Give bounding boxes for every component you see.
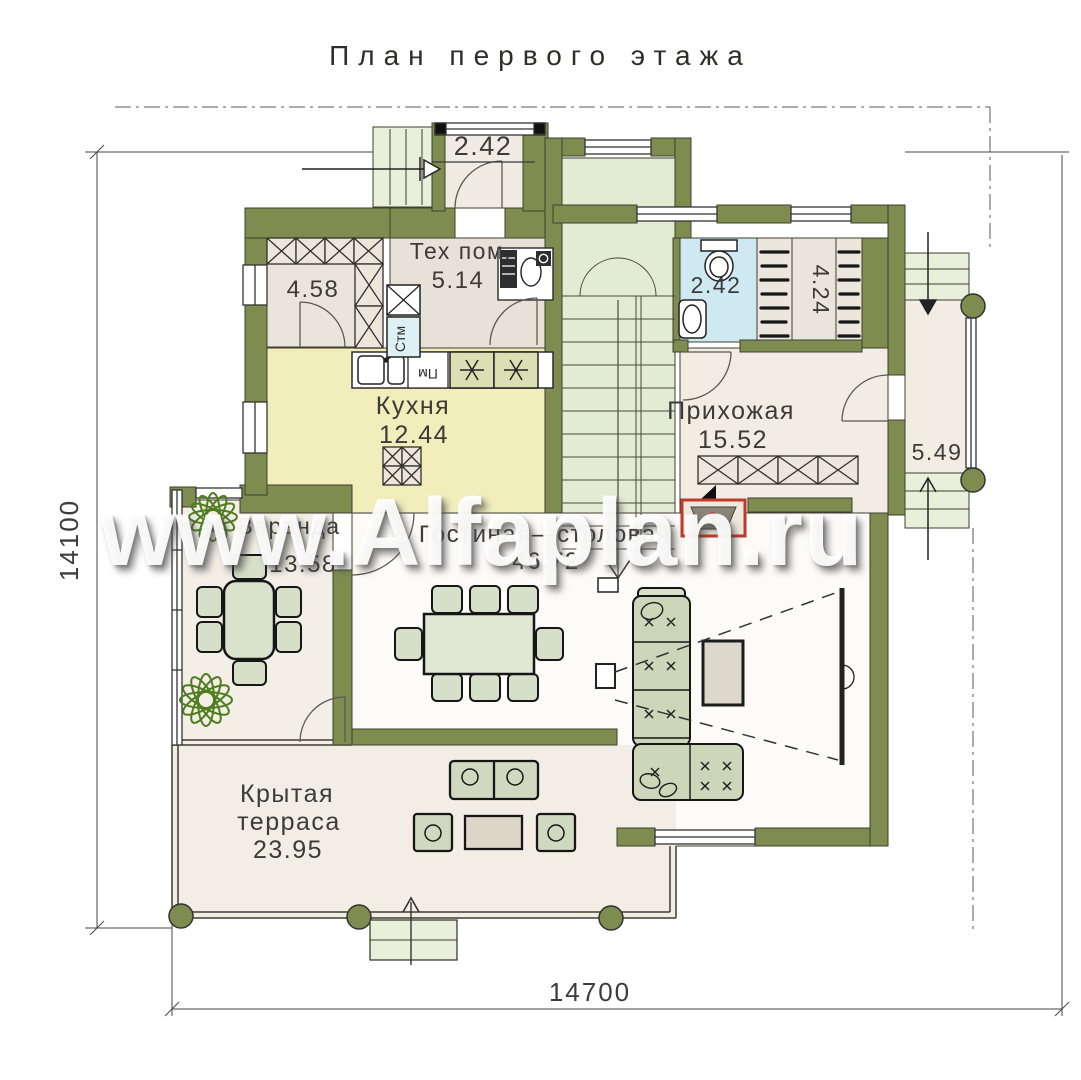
- window-porch: [966, 318, 976, 468]
- window-stairwell: [585, 140, 651, 154]
- label-tech-area: 5.14: [432, 267, 485, 294]
- cabinet-row-top: [267, 238, 383, 264]
- veranda-table: [224, 581, 274, 659]
- outdoor-chair-right: [537, 814, 575, 851]
- label-veranda-area: 13.58: [269, 551, 337, 578]
- floor-plan-drawing: 14100 14700: [0, 0, 1081, 1080]
- toilet-tank: [701, 240, 737, 251]
- dining-table: [424, 614, 534, 674]
- label-wardrobe-area: 4.24: [808, 265, 834, 316]
- dimension-left-label: 14100: [54, 499, 84, 581]
- porch-steps-bottom: [905, 473, 969, 528]
- label-kitchen-name: Кухня: [376, 392, 450, 420]
- porch-steps-top: [905, 253, 969, 300]
- window-bottom: [655, 830, 755, 844]
- media-box: [598, 578, 618, 592]
- tambour-entry-arrow: [302, 157, 440, 181]
- floor-plan-page: План первого этажа 14100 14700: [0, 0, 1081, 1080]
- tech-stove: [536, 251, 551, 266]
- label-dishwasher: Пм: [418, 366, 438, 382]
- kitchen-sink: [358, 355, 404, 384]
- coffee-table: [703, 641, 743, 705]
- label-living-area: 46.72: [512, 548, 580, 575]
- label-terrace-name1: Крытая: [240, 780, 334, 808]
- label-washer: Стм: [392, 326, 408, 352]
- label-living-name: Гостиная—столовая: [419, 521, 671, 548]
- label-tech-name: Тех пом.: [410, 238, 512, 264]
- label-veranda-name: Веранда: [237, 513, 340, 539]
- label-terrace-area: 23.95: [253, 836, 323, 864]
- label-tambour-area: 2.42: [454, 131, 513, 161]
- label-hallway-name: Прихожая: [667, 397, 795, 425]
- cooktop-burners: [450, 352, 538, 388]
- window-left-1: [243, 265, 267, 305]
- label-kitchen-area: 12.44: [379, 421, 449, 449]
- cabinet-column: [355, 264, 383, 348]
- outdoor-chair-left: [414, 814, 452, 851]
- outdoor-table: [465, 816, 522, 849]
- glazing-veranda-left: [172, 490, 182, 745]
- projector: [596, 664, 615, 688]
- label-terrace-name2: терраса: [237, 808, 341, 836]
- window-top-2: [791, 207, 851, 221]
- label-storage-area: 4.58: [287, 276, 340, 303]
- label-hallway-area: 15.52: [698, 426, 768, 454]
- kitchen-island: [383, 447, 421, 485]
- label-porch-area: 5.49: [912, 439, 963, 465]
- dimension-bottom-label: 14700: [549, 977, 631, 1007]
- label-bathroom-area: 2.42: [691, 272, 742, 298]
- kitchen-counter: [352, 352, 553, 388]
- hallway-wardrobe: [698, 456, 858, 484]
- window-top-1: [637, 207, 717, 221]
- window-left-2: [243, 402, 267, 453]
